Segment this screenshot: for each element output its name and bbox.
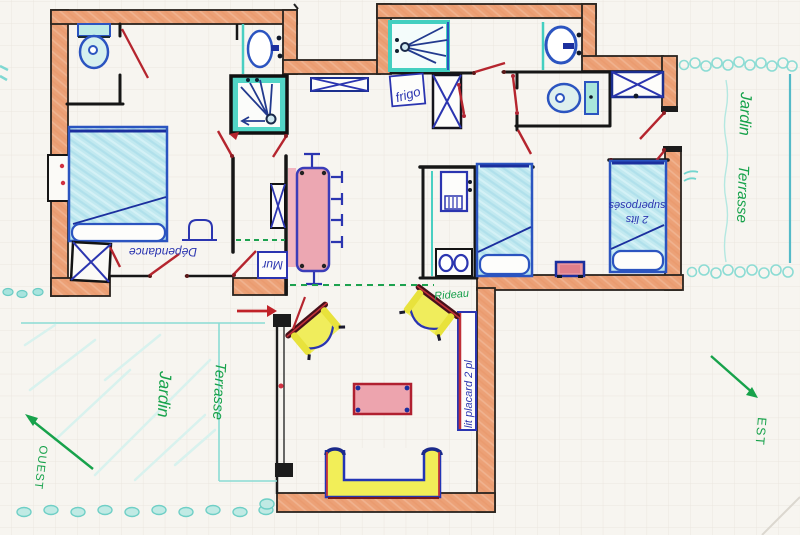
svg-text:2 lits: 2 lits <box>625 213 649 225</box>
svg-text:Dépendance: Dépendance <box>129 245 197 259</box>
svg-text:Mur: Mur <box>261 258 283 272</box>
svg-text:Terrasse: Terrasse <box>733 165 752 223</box>
svg-text:EST: EST <box>753 417 769 447</box>
svg-text:superposés: superposés <box>608 199 665 211</box>
svg-text:Terrasse: Terrasse <box>209 362 229 421</box>
svg-text:Jardin: Jardin <box>154 370 175 418</box>
svg-text:Jardin: Jardin <box>735 91 754 136</box>
svg-text:lit placard 2 pl: lit placard 2 pl <box>463 360 475 428</box>
